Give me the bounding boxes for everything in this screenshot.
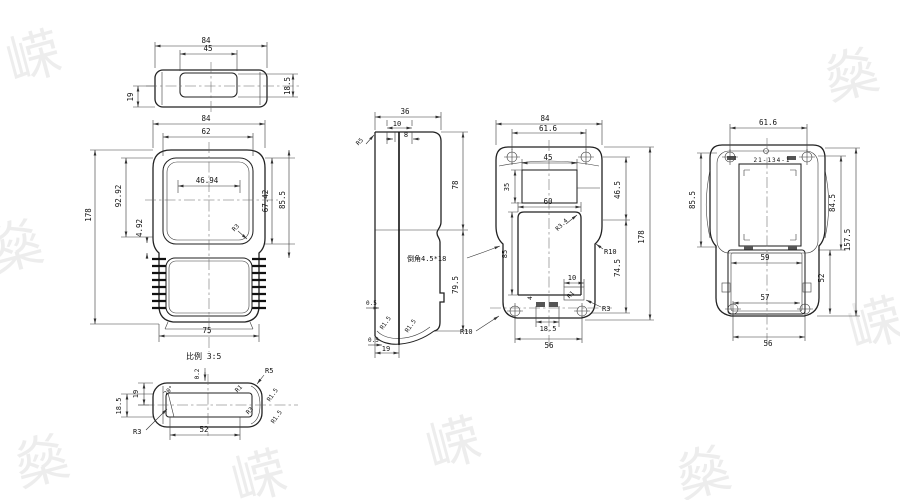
dim-side-boss-inner: 8 — [404, 131, 408, 139]
dim-back-battery-width: 59 — [760, 253, 769, 262]
dim-side-boss-width: 10 — [393, 120, 401, 128]
dim-back-panel-height: 85.5 — [688, 191, 697, 209]
watermark-glyph: 燊 — [817, 38, 885, 113]
label-inside-side-radius: R10 — [604, 248, 617, 256]
dim-side-lower-height: 79.5 — [451, 276, 460, 294]
centerline — [145, 142, 278, 352]
dim-inside-slot-width: 4 — [527, 296, 534, 300]
dim-front-window-height: 67.42 — [261, 190, 270, 213]
side-outline — [375, 132, 444, 331]
dim-detail-cavity-width: 52 — [199, 425, 208, 434]
dim-inside-window-width: 45 — [543, 153, 552, 162]
dim-front-body-height: 92.92 — [114, 185, 123, 208]
back-slot-mark — [744, 246, 753, 250]
dim-front-gap: 4.92 — [135, 219, 144, 237]
back-slot-mark — [788, 246, 797, 250]
inside-slot — [549, 302, 558, 307]
dim-inside-slot-span: 10 — [568, 274, 576, 282]
label-detail-draft-angle: 20° — [163, 385, 176, 398]
label-detail-lip-radius-a: R1.5 — [266, 387, 280, 403]
dim-front-width: 84 — [201, 114, 211, 123]
dim-inside-window-height: 35 — [503, 183, 511, 191]
dim-inside-opening-height: 85 — [501, 250, 509, 258]
centerline — [490, 140, 612, 348]
dim-front-total-height: 178 — [84, 208, 93, 222]
dim-front-window-width: 62 — [201, 127, 210, 136]
dim-front-section-height: 85.5 — [278, 191, 287, 209]
dim-detail-inner-height: 18.5 — [115, 398, 123, 415]
dim-back-hole-span-bottom: 56 — [763, 339, 773, 348]
label-inside-opening-radius: R3.4 — [554, 217, 569, 232]
dim-inside-opening-width: 60 — [543, 197, 553, 206]
top-cap-inner-boss — [180, 73, 237, 97]
engineering-drawing-sheet: 嵘 燊 燊 嵘 嵘 燊 嵘 燊 84 45 19 18.5 84 — [0, 0, 900, 500]
view-back: 21-134-1 61.6 85.5 84.5 157.5 59 52 57 5… — [688, 118, 860, 348]
dim-side-upper-height: 78 — [451, 180, 460, 190]
back-clip — [722, 283, 730, 292]
label-side-radius-a: R1.5 — [379, 315, 393, 331]
view-front: 84 62 46.94 178 92.92 4.92 67.42 85.5 75… — [84, 114, 295, 361]
dim-inside-lower-height: 74.5 — [613, 259, 622, 277]
label-inside-corner-radius: R10 — [460, 328, 473, 336]
label-side-radius-b: R1.5 — [404, 318, 418, 334]
label-detail-inner-radius: R1 — [234, 384, 244, 394]
label-side-top-radius: R5 — [355, 137, 365, 147]
dim-back-total-height: 157.5 — [843, 229, 852, 252]
inside-opening — [518, 212, 581, 295]
dim-back-hole-span: 61.6 — [759, 118, 778, 127]
screw-hole — [799, 149, 815, 165]
side-bottom-arc — [375, 331, 434, 344]
dim-inside-hole-span: 61.6 — [539, 124, 558, 133]
dim-back-battery-width-bottom: 57 — [760, 293, 769, 302]
dim-side-wall-a: 0.5 — [366, 300, 377, 307]
label-inside-slot-radius: R1 — [566, 290, 576, 300]
dim-back-battery-height: 52 — [817, 273, 826, 282]
front-display-window — [163, 158, 253, 244]
watermark-glyph: 嵘 — [0, 20, 68, 95]
watermark-glyph: 嵘 — [419, 407, 487, 482]
dim-top-inner-height: 18.5 — [283, 77, 292, 95]
view-inside: 84 61.6 45 35 60 R3.4 85 46.5 R10 74.5 1… — [460, 114, 654, 350]
chamfer-note: 倒角4.5*18 — [407, 254, 446, 263]
back-center-recess — [739, 164, 801, 246]
dim-inside-width: 84 — [540, 114, 550, 123]
watermark-glyph: 燊 — [669, 436, 737, 500]
drawing-canvas: 嵘 燊 燊 嵘 嵘 燊 嵘 燊 84 45 19 18.5 84 — [0, 0, 900, 500]
screw-hole — [722, 149, 738, 165]
dim-inside-hole-span-bottom: 56 — [544, 341, 554, 350]
label-front-corner-radius: R3 — [231, 223, 241, 233]
watermark-glyph: 燊 — [0, 210, 50, 285]
watermark-glyph: 嵘 — [841, 287, 900, 362]
dim-back-panel-height-right: 84.5 — [828, 194, 837, 212]
dim-detail-height: 19 — [132, 390, 140, 398]
part-number: 21-134-1 — [754, 157, 791, 164]
back-inner-panel — [717, 151, 818, 253]
view-side-section: 36 10 8 R5 78 79.5 0.5 0.5 R1.5 R1.5 19 … — [355, 107, 500, 358]
screw-hole — [578, 149, 594, 165]
dim-inside-upper-height: 46.5 — [613, 181, 622, 199]
watermark-glyph: 嵘 — [225, 440, 293, 500]
dim-front-grip-width: 75 — [202, 326, 211, 335]
back-outline — [710, 145, 825, 316]
dim-front-flat-width: 46.94 — [196, 176, 219, 185]
scale-note: 比例 3:5 — [186, 351, 221, 361]
screw-hole — [504, 149, 520, 165]
view-top-cap: 84 45 19 18.5 — [126, 36, 300, 114]
label-inside-boss-radius: R3 — [602, 305, 610, 313]
dim-inside-slot-offset: 18.5 — [540, 325, 557, 333]
label-detail-lip-radius-b: R1.5 — [270, 409, 284, 425]
dim-top-inner-width: 45 — [203, 44, 212, 53]
dim-side-base-width: 19 — [382, 345, 390, 353]
watermark-glyph: 燊 — [7, 425, 75, 500]
view-detail-section: 19 18.5 0.2 20° R1 R3 R5 R1.5 R1.5 R3 52 — [115, 367, 298, 440]
dim-inside-total-height: 178 — [637, 230, 646, 244]
inside-slot — [536, 302, 545, 307]
label-detail-radius-a: R3 — [245, 406, 255, 416]
dim-side-depth: 36 — [400, 107, 410, 116]
back-grip-bulges — [706, 170, 829, 238]
dim-top-height: 19 — [126, 92, 135, 101]
dim-side-wall-b: 0.5 — [368, 337, 379, 344]
label-detail-radius-b: R3 — [133, 428, 141, 436]
dim-detail-step: 0.2 — [194, 368, 201, 379]
label-detail-end-radius: R5 — [265, 367, 273, 375]
back-clip — [803, 283, 811, 292]
